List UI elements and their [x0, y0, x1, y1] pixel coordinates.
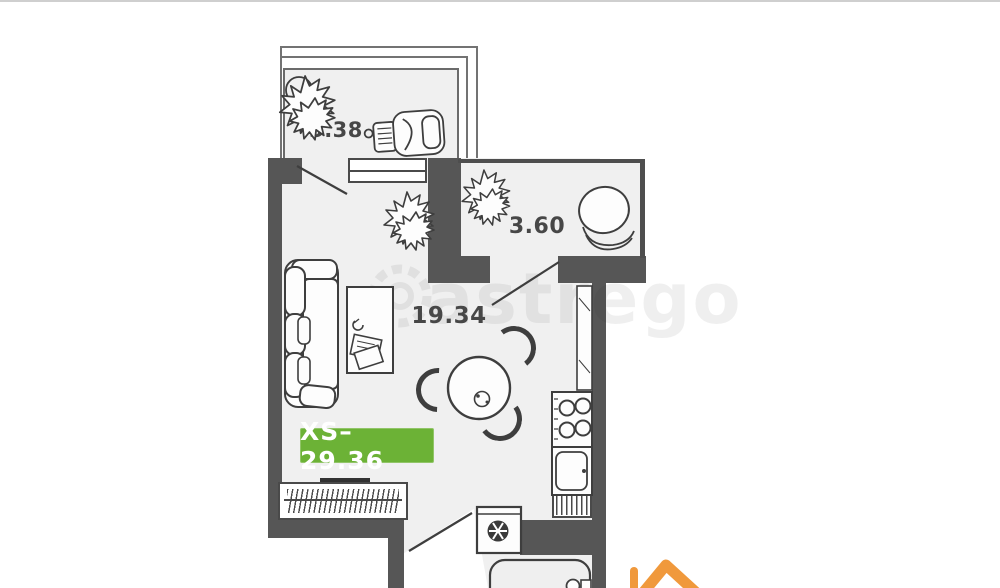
washing-machine [477, 507, 521, 553]
toilet [574, 182, 634, 250]
lounge-chair [363, 109, 445, 158]
floor-plan-image: astrego 3.38 3.60 19.34 XS–29.36 [0, 0, 1000, 588]
plant-icon-balcony [280, 76, 335, 140]
bathtub [490, 560, 591, 588]
stove [552, 392, 592, 447]
entry-door-leaf [409, 513, 472, 551]
desk [347, 287, 393, 373]
house-logo-icon [634, 565, 701, 588]
plant-icon-bathroom [462, 170, 510, 225]
balcony-door-leaf [297, 166, 347, 194]
sofa [285, 260, 338, 409]
furniture-layer [0, 0, 1000, 588]
bathroom-door-leaf [492, 262, 559, 305]
plant-icon-living [384, 192, 434, 250]
kitchen-tall-unit [577, 286, 592, 390]
kitchen-sink [552, 447, 592, 495]
